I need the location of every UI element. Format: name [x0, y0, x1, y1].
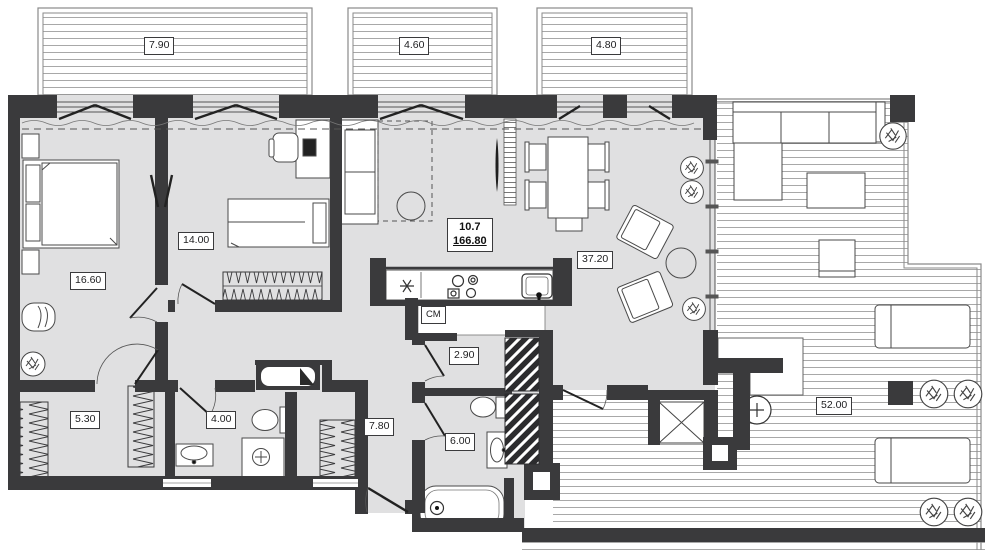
- plant-icon: [920, 380, 948, 408]
- wardrobe-rail-left: [20, 402, 48, 480]
- plant-icon: [681, 181, 704, 204]
- round-table: [397, 192, 425, 220]
- bathtub-small: [256, 363, 320, 390]
- balcony-area-label-right: 4.80: [591, 37, 621, 55]
- room-area-label-living-kitchen: 37.20: [577, 251, 613, 269]
- lounger-1: [875, 305, 970, 348]
- outdoor-chair: [819, 240, 855, 277]
- plant-icon: [920, 498, 948, 526]
- room-area-label-bathroom-guest: 4.00: [206, 411, 236, 429]
- desk-chair: [269, 133, 298, 162]
- side-table: [666, 248, 696, 278]
- vent-shaft-1: [505, 338, 539, 391]
- plant-icon: [880, 123, 906, 149]
- room-area-label-bedroom-master: 16.60: [70, 272, 106, 290]
- bed-single: [228, 199, 329, 247]
- total-area-value: 166.80: [453, 235, 487, 249]
- plant-icon: [683, 298, 706, 321]
- room-area-label-bathroom-main: 6.00: [445, 433, 475, 451]
- toilet-main: [471, 397, 508, 418]
- sink-main: [487, 432, 507, 468]
- lounger-2: [875, 438, 970, 483]
- hall-closet-rail: [320, 420, 355, 482]
- floor-plan-drawing: [0, 0, 1000, 554]
- room-area-label-terrace: 52.00: [816, 397, 852, 415]
- wardrobe-rail-right: [128, 386, 154, 467]
- unit-number: 10.7: [459, 221, 480, 233]
- sink-guest: [176, 444, 213, 466]
- washer-label: СМ: [421, 306, 446, 324]
- wardrobe-rail: [223, 272, 322, 300]
- room-area-label-hallway: 7.80: [364, 418, 394, 436]
- shower: [242, 438, 284, 478]
- nightstand-top: [22, 134, 39, 158]
- bed-double: [23, 160, 119, 248]
- room-area-label-bedroom-second: 14.00: [178, 232, 214, 250]
- plant-icon: [21, 352, 45, 376]
- vent-shaft-2: [505, 394, 539, 464]
- pouf: [22, 303, 55, 331]
- plant-icon: [681, 157, 704, 180]
- coffee-table: [807, 173, 865, 208]
- skylight-hatch: [659, 402, 704, 443]
- balcony-area-label-left: 7.90: [144, 37, 174, 55]
- room-area-label-wardrobe: 5.30: [70, 411, 100, 429]
- plant-icon: [954, 380, 982, 408]
- total-area-label: 10.7 166.80: [447, 218, 493, 252]
- plant-icon: [954, 498, 982, 526]
- balcony-left: [38, 8, 312, 95]
- balcony-area-label-middle: 4.60: [399, 37, 429, 55]
- nightstand-bottom: [22, 250, 39, 274]
- room-area-label-storage: 2.90: [449, 347, 479, 365]
- floor-plan: 7.90 4.60 4.80 16.60 14.00 37.20 5.30 4.…: [0, 0, 1000, 554]
